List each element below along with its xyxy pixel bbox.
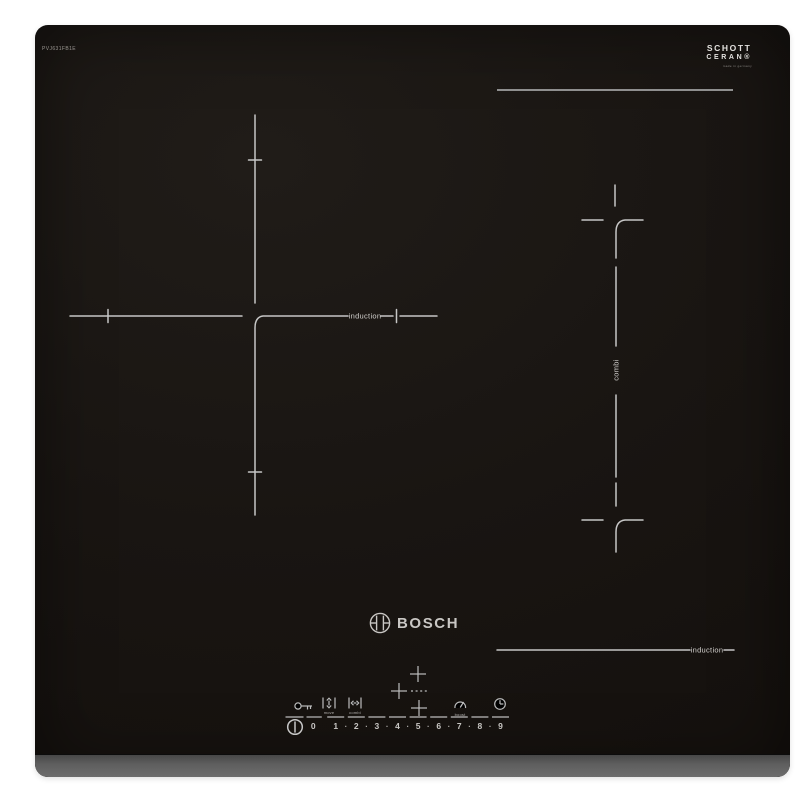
power-icon (288, 720, 303, 735)
level-2-button[interactable]: 2 (354, 721, 359, 731)
induction-hob-surface: PVJ631FB1E SCHOTT CERAN® made in germany (35, 25, 790, 777)
bosch-anchor-icon (369, 612, 391, 634)
level-separator-dot: · (386, 722, 389, 731)
combi-button[interactable] (349, 698, 361, 709)
level-separator-dot: · (448, 722, 451, 731)
level-separator-dot: · (345, 722, 348, 731)
power-button[interactable] (288, 720, 303, 735)
level-8-button[interactable]: 8 (478, 721, 483, 731)
left-zone-marking (70, 115, 437, 515)
flex-select-left-button[interactable] (391, 683, 429, 699)
level-3-button[interactable]: 3 (375, 721, 380, 731)
timer-button[interactable] (495, 699, 506, 710)
boost-button[interactable] (455, 702, 466, 708)
child-lock-button[interactable] (295, 703, 312, 710)
timer-clock-icon (495, 699, 506, 710)
level-6-button[interactable]: 6 (436, 721, 441, 731)
front-trim (35, 754, 790, 777)
left-zone-label: induction (349, 312, 382, 321)
move-button-label: move (324, 710, 335, 715)
combi-button-label: combi (349, 710, 361, 715)
level-7-button[interactable]: 7 (457, 721, 462, 731)
bosch-wordmark: BOSCH (397, 615, 459, 632)
right-zone-label: induction (691, 646, 724, 655)
combi-zone-label: combi (612, 359, 621, 381)
level-separator-dot: · (468, 722, 471, 731)
bosch-logo: BOSCH (369, 612, 459, 634)
level-4-button[interactable]: 4 (395, 721, 400, 731)
level-9-button[interactable]: 9 (498, 721, 503, 731)
combi-zone-icon (349, 698, 361, 709)
move-zone-icon (323, 698, 335, 709)
child-lock-key-icon (295, 703, 312, 710)
boost-gauge-icon (455, 702, 466, 708)
level-separator-dot: · (365, 722, 368, 731)
level-1-button[interactable]: 1 (333, 721, 338, 731)
level-5-button[interactable]: 5 (416, 721, 421, 731)
level-separator-dot: · (406, 722, 409, 731)
flex-select-top-button[interactable] (410, 666, 426, 682)
move-button[interactable] (323, 698, 335, 709)
level-separator-dot: · (427, 722, 430, 731)
boost-button-label: boost (455, 712, 466, 717)
flex-select-bottom-button[interactable] (411, 700, 427, 716)
level-separator-dot: · (489, 722, 492, 731)
level-0-button[interactable]: 0 (311, 721, 316, 731)
